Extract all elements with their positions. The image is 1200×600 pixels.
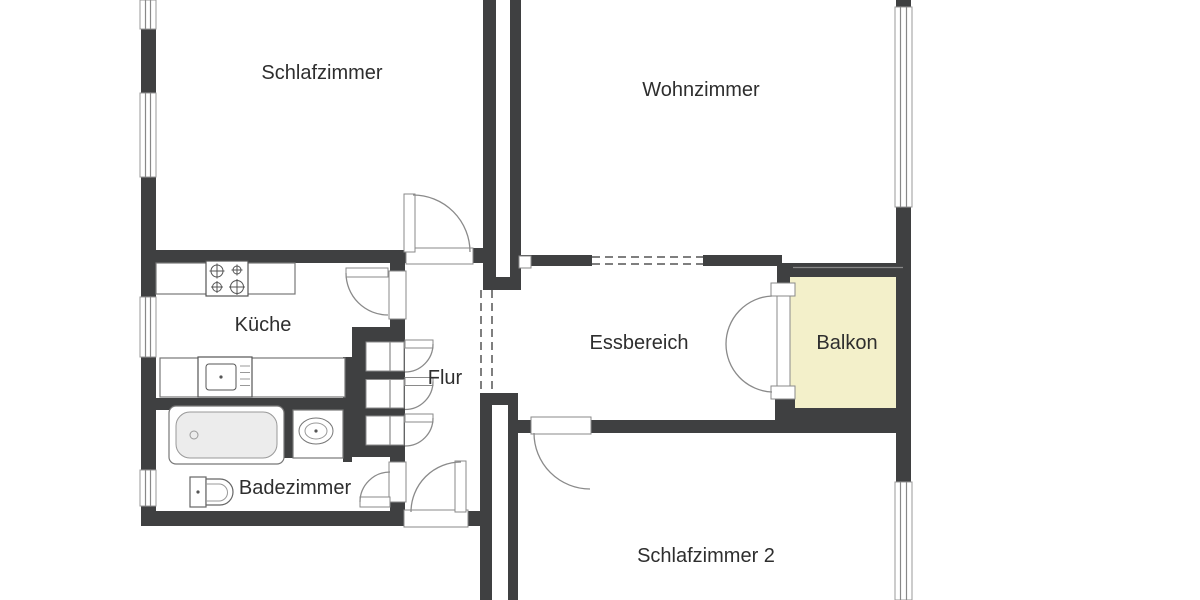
doors: [346, 194, 795, 527]
toilet-icon: [190, 477, 233, 507]
window-icon-bathroom: [140, 470, 156, 506]
wardrobe-niche-icon: [366, 342, 404, 445]
room-label-schlafzimmer2: Schlafzimmer 2: [637, 545, 775, 567]
room-label-essbereich: Essbereich: [590, 332, 689, 354]
door-swing-bathroom: [360, 462, 406, 507]
kitchen-sink-icon: [198, 357, 252, 397]
window-icon-bedroom1: [140, 93, 156, 177]
room-label-kueche: Küche: [235, 314, 292, 336]
washbasin-icon: [293, 410, 343, 458]
window-icon-kitchen: [140, 297, 156, 357]
door-swing-bedroom1: [404, 194, 473, 264]
floor-plan-drawing: Schlafzimmer Wohnzimmer Küche Flur Essbe…: [0, 0, 1200, 600]
room-label-badezimmer: Badezimmer: [239, 477, 352, 499]
window-icon-bedroom1-top: [140, 0, 156, 29]
stove-icon: [206, 261, 248, 296]
floor-plan-canvas: Schlafzimmer Wohnzimmer Küche Flur Essbe…: [0, 0, 1200, 600]
opening-hall-dining: [481, 290, 492, 393]
room-label-flur: Flur: [428, 367, 463, 389]
window-icon-livingroom: [895, 7, 912, 207]
opening-livingroom-dining: [592, 257, 703, 264]
bathtub-icon: [169, 406, 284, 464]
room-label-schlafzimmer: Schlafzimmer: [261, 62, 382, 84]
window-icon-bedroom2: [895, 482, 912, 600]
door-swing-bedroom2: [531, 417, 591, 489]
door-swing-balcony: [726, 283, 795, 399]
door-swing-entry: [404, 461, 468, 527]
room-label-wohnzimmer: Wohnzimmer: [642, 79, 760, 101]
room-label-balkon: Balkon: [816, 332, 877, 354]
door-swing-closet-3: [405, 414, 433, 446]
door-swing-kitchen: [346, 268, 406, 319]
